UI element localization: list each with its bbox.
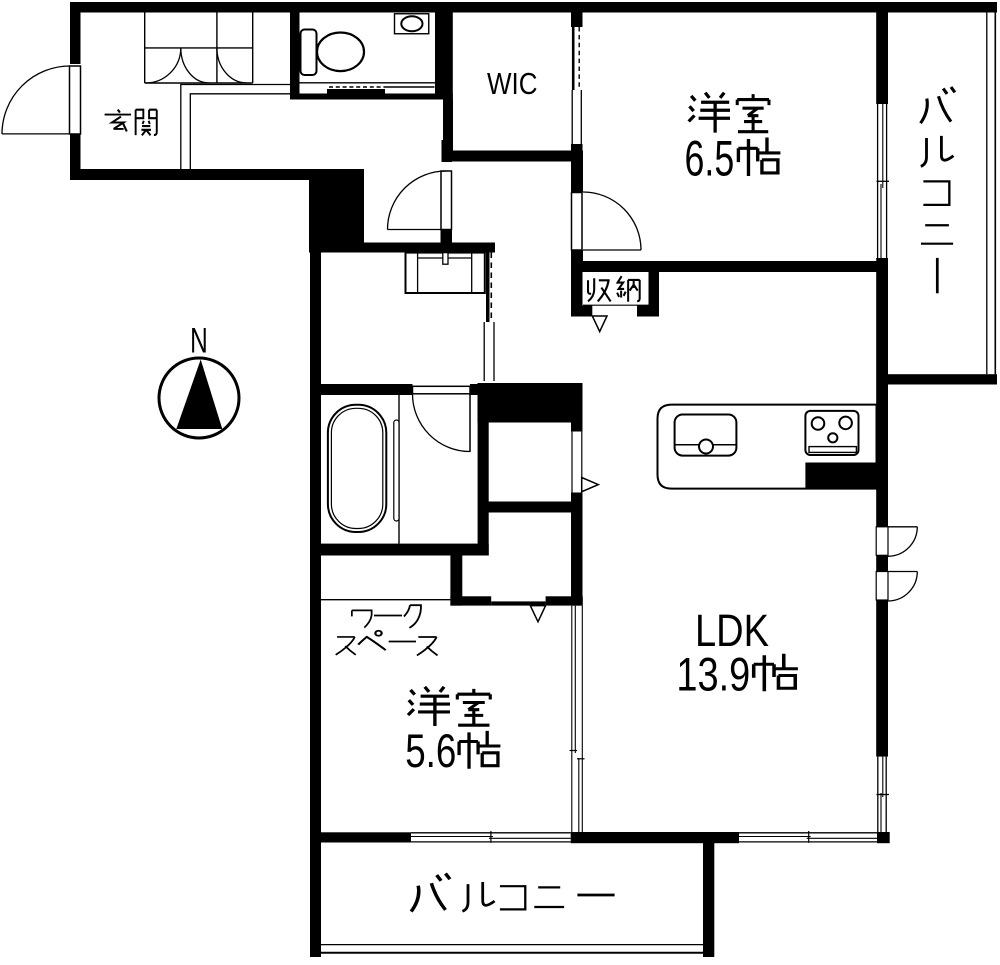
svg-text:13.9: 13.9 (676, 648, 750, 701)
svg-text:6.5: 6.5 (685, 130, 735, 186)
svg-text:WIC: WIC (487, 66, 538, 101)
svg-text:5.6: 5.6 (405, 725, 456, 778)
svg-text:N: N (190, 322, 208, 361)
